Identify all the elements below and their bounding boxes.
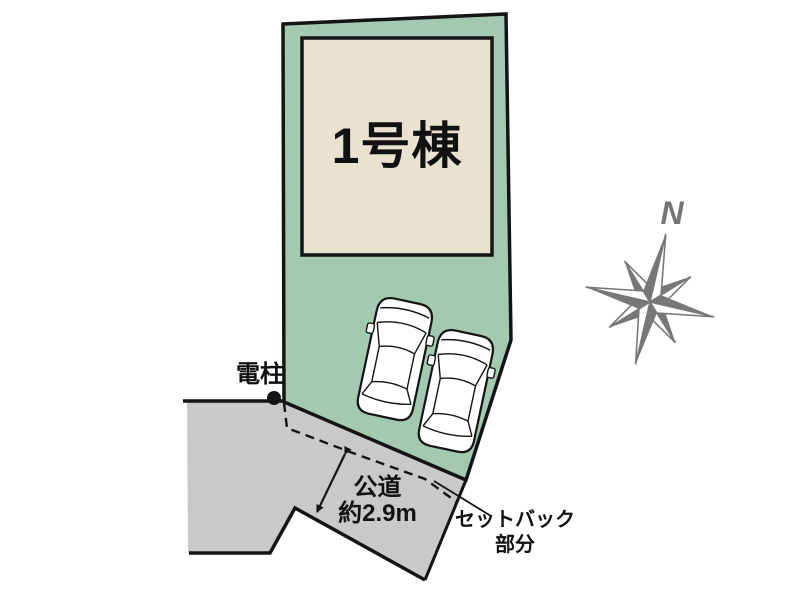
setback-label-line1: セットバック: [450, 510, 580, 531]
utility-pole-label: 電柱: [226, 362, 284, 387]
compass-rose-icon: [571, 219, 730, 379]
setback-label-line2: 部分: [450, 535, 580, 556]
utility-pole-dot: [267, 391, 281, 405]
site-plan: 1号棟 電柱 公道 約2.9m セットバック 部分 N: [0, 0, 800, 601]
road-width-label: 約2.9m: [315, 501, 440, 526]
building-label: 1号棟: [302, 38, 492, 255]
setback-label: セットバック 部分: [450, 510, 580, 556]
road-label: 公道: [325, 475, 430, 500]
north-label: N: [648, 197, 696, 231]
